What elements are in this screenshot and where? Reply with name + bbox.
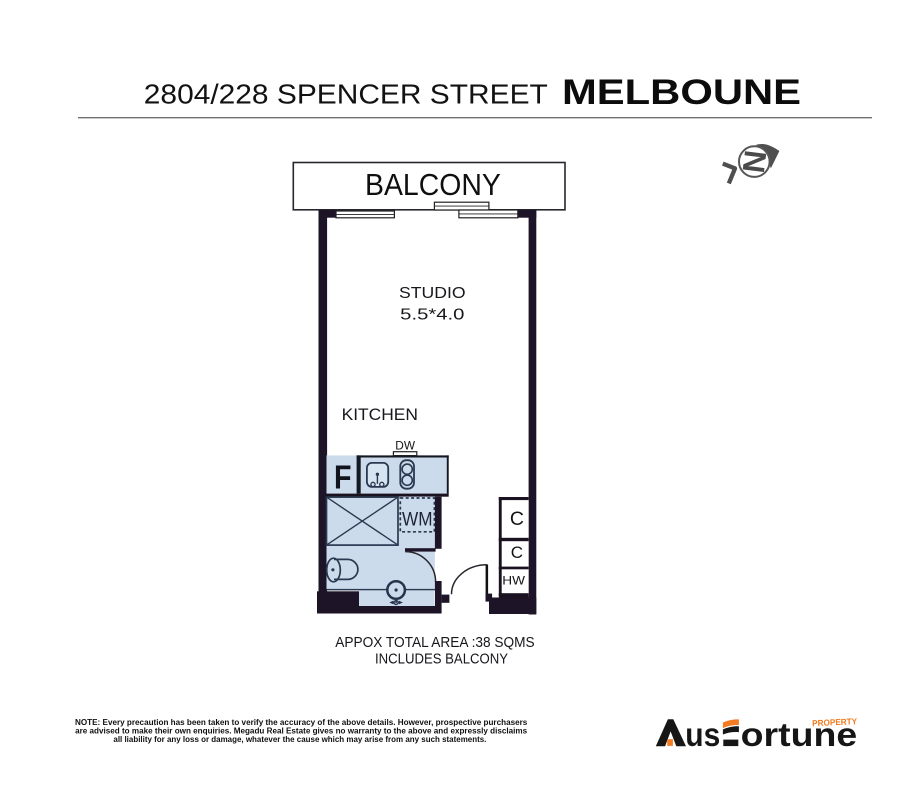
- svg-text:HW: HW: [502, 574, 525, 587]
- svg-text:us: us: [685, 716, 720, 753]
- svg-text:C: C: [510, 508, 524, 530]
- svg-text:APPOX TOTAL AREA :38 SQMS: APPOX TOTAL AREA :38 SQMS: [335, 634, 535, 651]
- svg-text:DW: DW: [395, 438, 415, 452]
- svg-text:5.5*4.0: 5.5*4.0: [400, 307, 464, 324]
- svg-text:INCLUDES BALCONY: INCLUDES BALCONY: [375, 650, 508, 667]
- svg-text:WM: WM: [402, 509, 433, 530]
- svg-text:BALCONY: BALCONY: [365, 169, 501, 202]
- svg-text:all liability for any loss or: all liability for any loss or damage, wh…: [113, 734, 486, 744]
- svg-text:F: F: [334, 459, 352, 496]
- svg-text:KITCHEN: KITCHEN: [342, 405, 418, 424]
- svg-text:MELBOUNE: MELBOUNE: [562, 72, 801, 112]
- svg-text:C: C: [511, 543, 523, 562]
- svg-text:2804/228 SPENCER STREET: 2804/228 SPENCER STREET: [144, 79, 548, 110]
- svg-text:N: N: [736, 148, 773, 174]
- svg-text:PROPERTY: PROPERTY: [812, 716, 858, 728]
- svg-text:STUDIO: STUDIO: [399, 285, 466, 302]
